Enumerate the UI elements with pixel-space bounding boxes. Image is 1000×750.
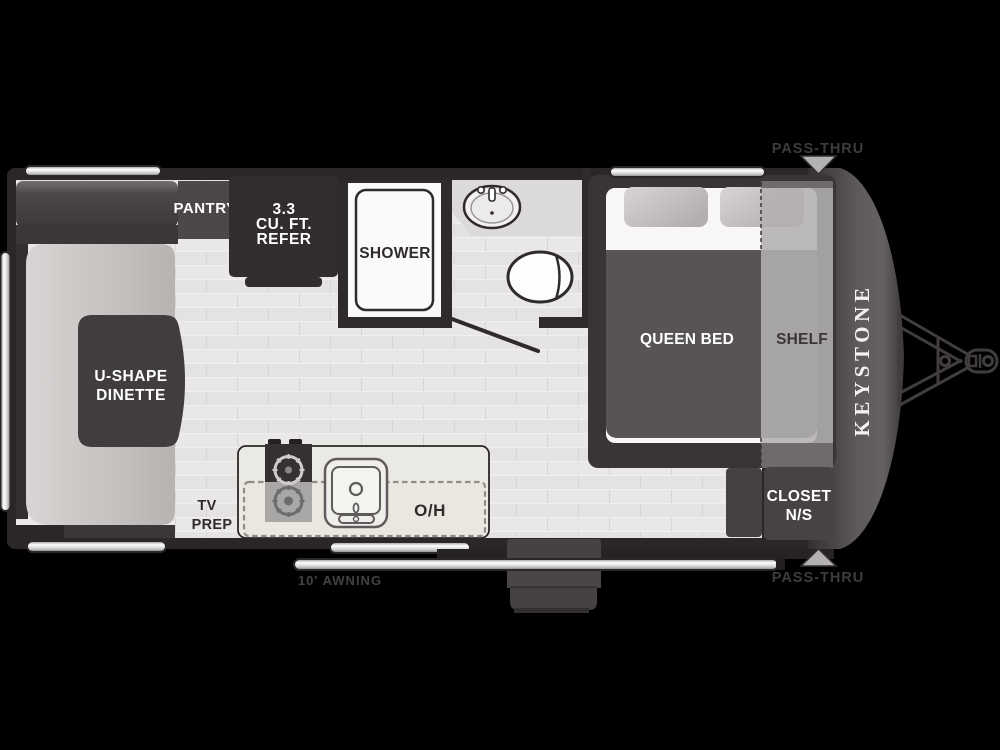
svg-text:KEYSTONE: KEYSTONE [850, 283, 874, 436]
svg-text:CLOSET: CLOSET [767, 488, 832, 505]
svg-text:PASS-THRU: PASS-THRU [772, 570, 865, 586]
svg-text:10' AWNING: 10' AWNING [298, 573, 382, 588]
svg-text:N/S: N/S [786, 507, 813, 524]
svg-text:DINETTE: DINETTE [96, 387, 166, 404]
svg-text:PREP: PREP [192, 517, 233, 533]
svg-text:PASS-THRU: PASS-THRU [772, 141, 865, 157]
svg-text:SHELF: SHELF [776, 331, 828, 348]
svg-text:REFER: REFER [256, 231, 311, 248]
svg-text:TV: TV [197, 498, 216, 514]
svg-text:QUEEN BED: QUEEN BED [640, 331, 734, 348]
svg-text:SHOWER: SHOWER [359, 245, 431, 262]
svg-text:PANTRY: PANTRY [174, 200, 237, 217]
svg-text:O/H: O/H [414, 501, 446, 520]
svg-text:U-SHAPE: U-SHAPE [94, 368, 167, 385]
